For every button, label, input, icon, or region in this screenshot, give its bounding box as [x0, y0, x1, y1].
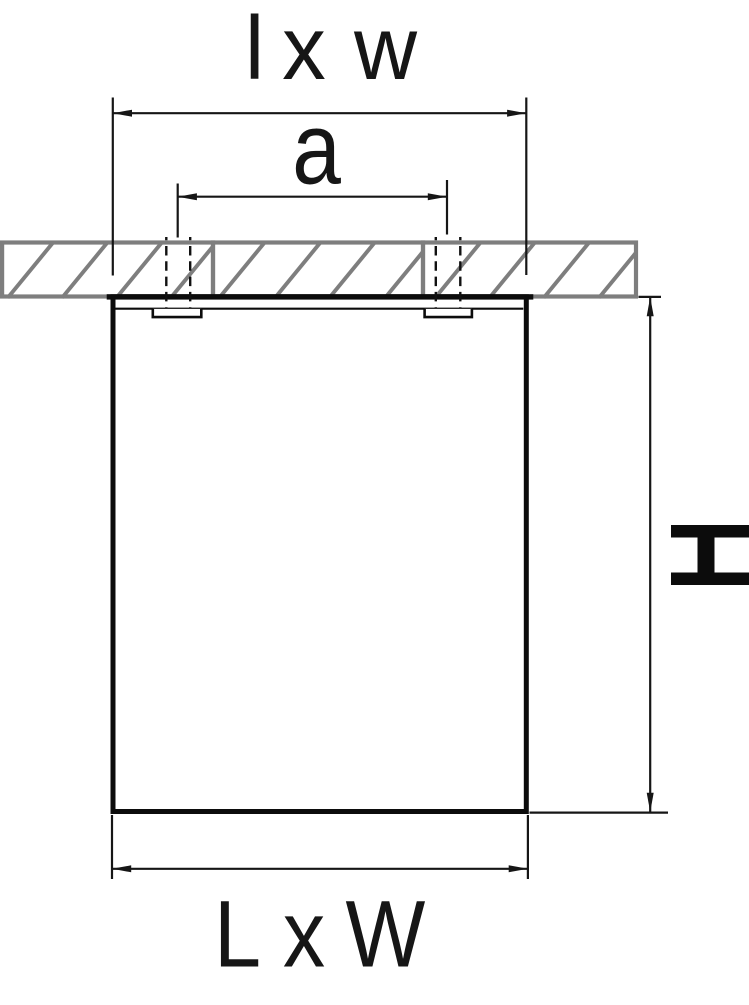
svg-text:LxW: LxW	[214, 882, 425, 988]
svg-text:a: a	[292, 92, 341, 206]
